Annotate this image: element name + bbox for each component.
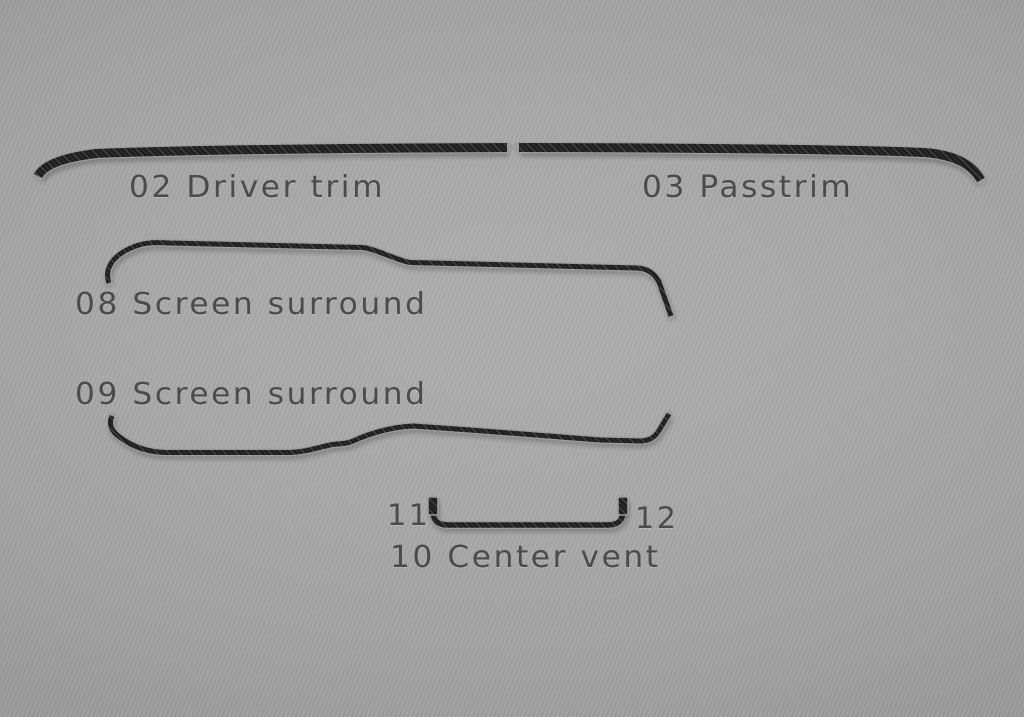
trim-pieces-canvas xyxy=(0,0,1024,717)
center-vent-label: 10 Center vent xyxy=(390,540,661,575)
screen-surround-bottom-label: 09 Screen surround xyxy=(75,377,427,412)
vent-tab-right-shape xyxy=(618,497,630,518)
passtrim-label: 03 Passtrim xyxy=(642,170,853,205)
trim-kit-diagram: 02 Driver trim 03 Passtrim 08 Screen sur… xyxy=(0,0,1024,717)
screen-surround-bottom-shape xyxy=(110,414,670,456)
center-vent-shape xyxy=(433,499,625,529)
driver-trim-label: 02 Driver trim xyxy=(129,170,385,205)
screen-surround-top-label: 08 Screen surround xyxy=(75,287,427,322)
vent-tab-left-label: 11 xyxy=(387,498,431,532)
vent-tab-right-label: 12 xyxy=(635,501,679,535)
